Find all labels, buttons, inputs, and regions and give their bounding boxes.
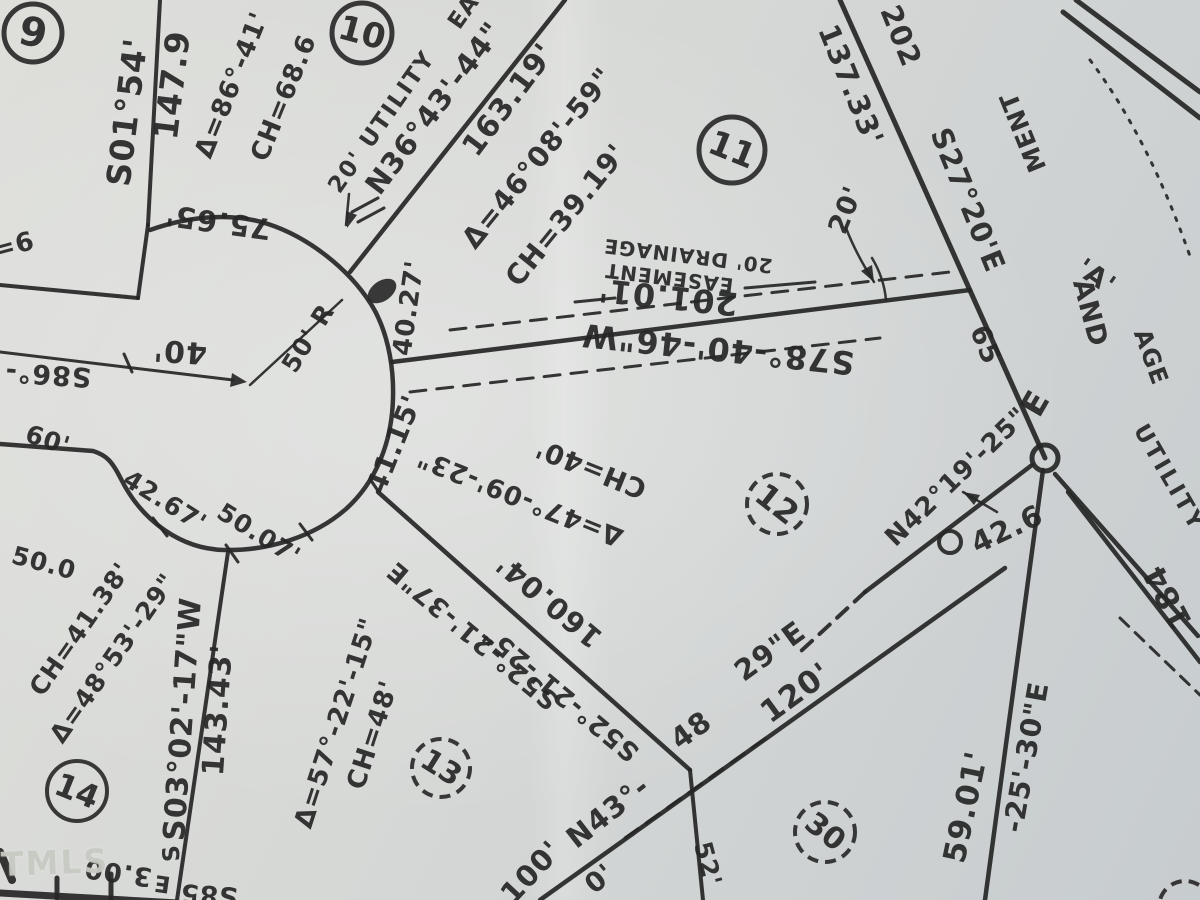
survey-label: 0' bbox=[579, 858, 621, 900]
survey-label: S85 bbox=[179, 877, 239, 900]
boundary-line bbox=[352, 198, 378, 212]
boundary-line bbox=[358, 208, 384, 222]
survey-label: N43°- bbox=[560, 769, 657, 855]
boundary-line bbox=[378, 492, 690, 770]
survey-label: 184 bbox=[1136, 559, 1200, 636]
easement-dash-path bbox=[1090, 60, 1192, 262]
survey-label: S78°-40'-46"W bbox=[580, 316, 856, 382]
survey-label: 59.01' bbox=[937, 748, 996, 867]
plat-svg: 9101112131430S01°54'147.9Δ=86°-41'CH=68.… bbox=[0, 0, 1200, 900]
boundary-line bbox=[840, 0, 1045, 458]
lot-number: 14 bbox=[49, 765, 105, 817]
arrow-head bbox=[861, 265, 874, 282]
point-marker bbox=[939, 531, 961, 553]
survey-label: UTILITY bbox=[1128, 420, 1200, 536]
watermark: TMLS bbox=[0, 841, 109, 884]
lot-number: 13 bbox=[414, 742, 468, 794]
arrow-head bbox=[230, 373, 247, 387]
survey-label: 40.27' bbox=[387, 258, 430, 357]
lot-number: 30 bbox=[798, 805, 852, 858]
survey-label: AGE bbox=[1128, 325, 1174, 389]
arrow-head bbox=[963, 492, 980, 505]
boundary-line bbox=[124, 354, 132, 372]
lot-number: 11 bbox=[703, 123, 762, 178]
survey-label: 41.15' bbox=[359, 390, 428, 498]
survey-label: 202 bbox=[873, 0, 928, 72]
survey-label: S27°20'E bbox=[924, 123, 1013, 277]
lot-number-circle bbox=[1159, 881, 1200, 900]
easement-dash-line bbox=[1120, 618, 1200, 695]
survey-label: 48 bbox=[664, 704, 718, 756]
survey-label: S01°54' bbox=[99, 36, 156, 189]
survey-label: E bbox=[152, 869, 172, 897]
survey-label: 50.0 bbox=[9, 540, 80, 585]
survey-label: =6 bbox=[0, 226, 38, 266]
survey-label: 50' R bbox=[276, 298, 341, 377]
plat-map-scan: 9101112131430S01°54'147.9Δ=86°-41'CH=68.… bbox=[0, 0, 1200, 900]
lot-number: 10 bbox=[334, 8, 390, 59]
boundary-line bbox=[1076, 0, 1200, 92]
survey-label: 75.65' bbox=[163, 198, 273, 247]
survey-label: S86°- bbox=[4, 356, 93, 393]
survey-label: S bbox=[158, 843, 185, 863]
survey-label: MENT bbox=[994, 88, 1052, 177]
survey-label: 52' bbox=[688, 838, 728, 889]
survey-label: 20' bbox=[822, 182, 869, 239]
boundary-line bbox=[1063, 12, 1200, 118]
boundary-line bbox=[0, 893, 178, 900]
lot-number: 9 bbox=[15, 8, 52, 59]
arrow-head bbox=[346, 211, 357, 228]
boundary-line bbox=[745, 282, 815, 288]
boundary-line bbox=[153, 518, 167, 536]
boundary-line bbox=[0, 285, 138, 298]
boundary-line bbox=[138, 225, 148, 298]
survey-label: S52°-21'-25" bbox=[477, 619, 646, 768]
survey-label: 60' bbox=[22, 419, 74, 461]
survey-label: 40' bbox=[152, 332, 208, 371]
